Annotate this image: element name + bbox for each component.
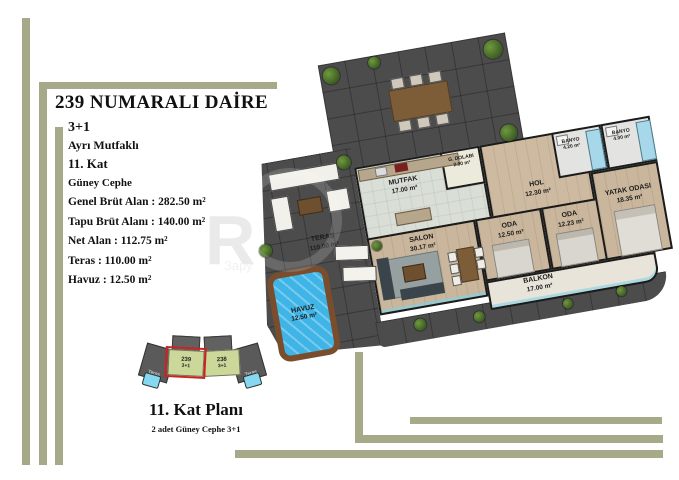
dining-chair: [474, 247, 485, 258]
unit-type: 3+1: [68, 120, 139, 136]
area-value: 112.75 m²: [121, 235, 168, 247]
garden-chair: [416, 116, 431, 129]
area-label: Net Alan: [68, 235, 111, 247]
dining-chair: [449, 263, 460, 274]
pool-label: HAVUZ 12.50 m²: [289, 303, 318, 324]
area-separator: :: [111, 235, 121, 247]
key-plan-unit-238: 238 3+1: [203, 349, 240, 377]
area-value: 282.50 m²: [158, 196, 206, 208]
unit-info: 3+1 Ayrı Mutfaklı 11. Kat Güney Cephe: [68, 120, 139, 189]
accent-bar-left-outer: [22, 18, 30, 465]
area-list: Genel Brüt Alan : 282.50 m² Tapu Brüt Al…: [68, 196, 206, 294]
accent-bar-bottom-1: [410, 417, 662, 424]
key-plan-caption: 11. Kat Planı: [116, 400, 276, 420]
dining-chair: [451, 275, 462, 286]
master-bed: [614, 204, 663, 257]
accent-bar-bottom-3: [235, 450, 663, 458]
area-value: 110.00 m²: [105, 255, 152, 267]
garden-chair: [390, 77, 405, 90]
accent-bar-left-inner: [55, 127, 63, 465]
area-separator: :: [95, 255, 105, 267]
area-row: Tapu Brüt Alanı : 140.00 m²: [68, 216, 206, 228]
area-label: Havuz: [68, 274, 100, 286]
garden-chair: [409, 74, 424, 87]
dining-chair: [447, 251, 458, 262]
area-value: 140.00 m²: [158, 216, 206, 228]
watermark-text: Зару: [224, 258, 253, 273]
garden-chair: [435, 113, 450, 126]
accent-bar-left-mid: [39, 82, 47, 465]
area-separator: :: [100, 274, 110, 286]
area-row: Havuz : 12.50 m²: [68, 274, 206, 286]
area-separator: :: [148, 216, 158, 228]
unit-facade: Güney Cephe: [68, 177, 139, 189]
accent-bar-bottom-2: [355, 435, 663, 443]
unit-floor: 11. Kat: [68, 156, 139, 172]
area-label: Genel Brüt Alan: [68, 196, 149, 208]
bed: [556, 227, 599, 267]
area-separator: :: [149, 196, 159, 208]
sun-lounger: [342, 266, 377, 282]
dining-chair: [476, 258, 487, 269]
key-plan: Teras Teras 239 3+1 238 3+1: [140, 330, 265, 398]
area-row: Genel Brüt Alan : 282.50 m²: [68, 196, 206, 208]
area-row: Net Alan : 112.75 m²: [68, 235, 206, 247]
area-label: Teras: [68, 255, 95, 267]
unit-kitchen: Ayrı Mutfaklı: [68, 138, 139, 153]
garden-chair: [398, 119, 413, 132]
key-plan-subcaption: 2 adet Güney Cephe 3+1: [116, 424, 276, 434]
key-plan-unit-239-highlight: [164, 346, 207, 379]
key-plan-pool-right: [243, 372, 263, 389]
area-label: Tapu Brüt Alanı: [68, 216, 148, 228]
key-plan-unit-type: 3+1: [218, 363, 227, 369]
area-value: 12.50 m²: [110, 274, 152, 286]
garden-chair: [428, 70, 443, 83]
bed: [492, 238, 535, 278]
brochure-page: 239 NUMARALI DAİRE 3+1 Ayrı Mutfaklı 11.…: [0, 0, 679, 480]
area-row: Teras : 110.00 m²: [68, 255, 206, 267]
